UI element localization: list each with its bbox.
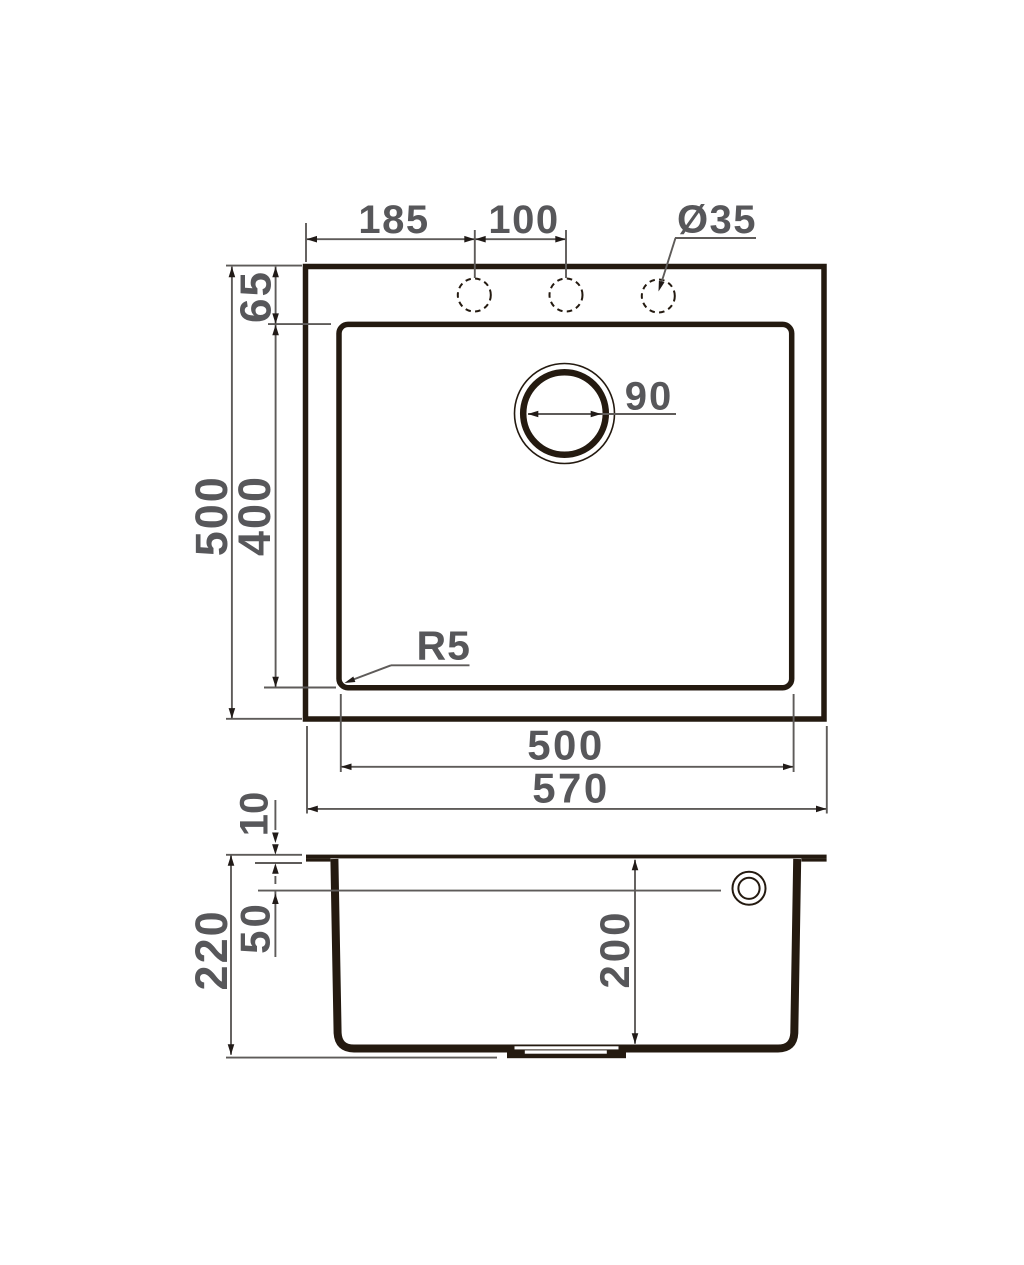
svg-text:500: 500 [527, 722, 605, 769]
svg-text:65: 65 [232, 270, 281, 323]
svg-text:100: 100 [488, 198, 559, 242]
svg-text:220: 220 [186, 909, 237, 990]
svg-text:90: 90 [625, 375, 674, 419]
svg-text:200: 200 [591, 910, 638, 989]
svg-text:570: 570 [532, 765, 610, 812]
svg-text:400: 400 [229, 475, 280, 556]
svg-text:50: 50 [232, 901, 279, 954]
svg-text:10: 10 [233, 792, 277, 837]
svg-text:Ø35: Ø35 [677, 198, 757, 242]
svg-text:R5: R5 [416, 622, 470, 668]
svg-text:185: 185 [358, 198, 429, 242]
